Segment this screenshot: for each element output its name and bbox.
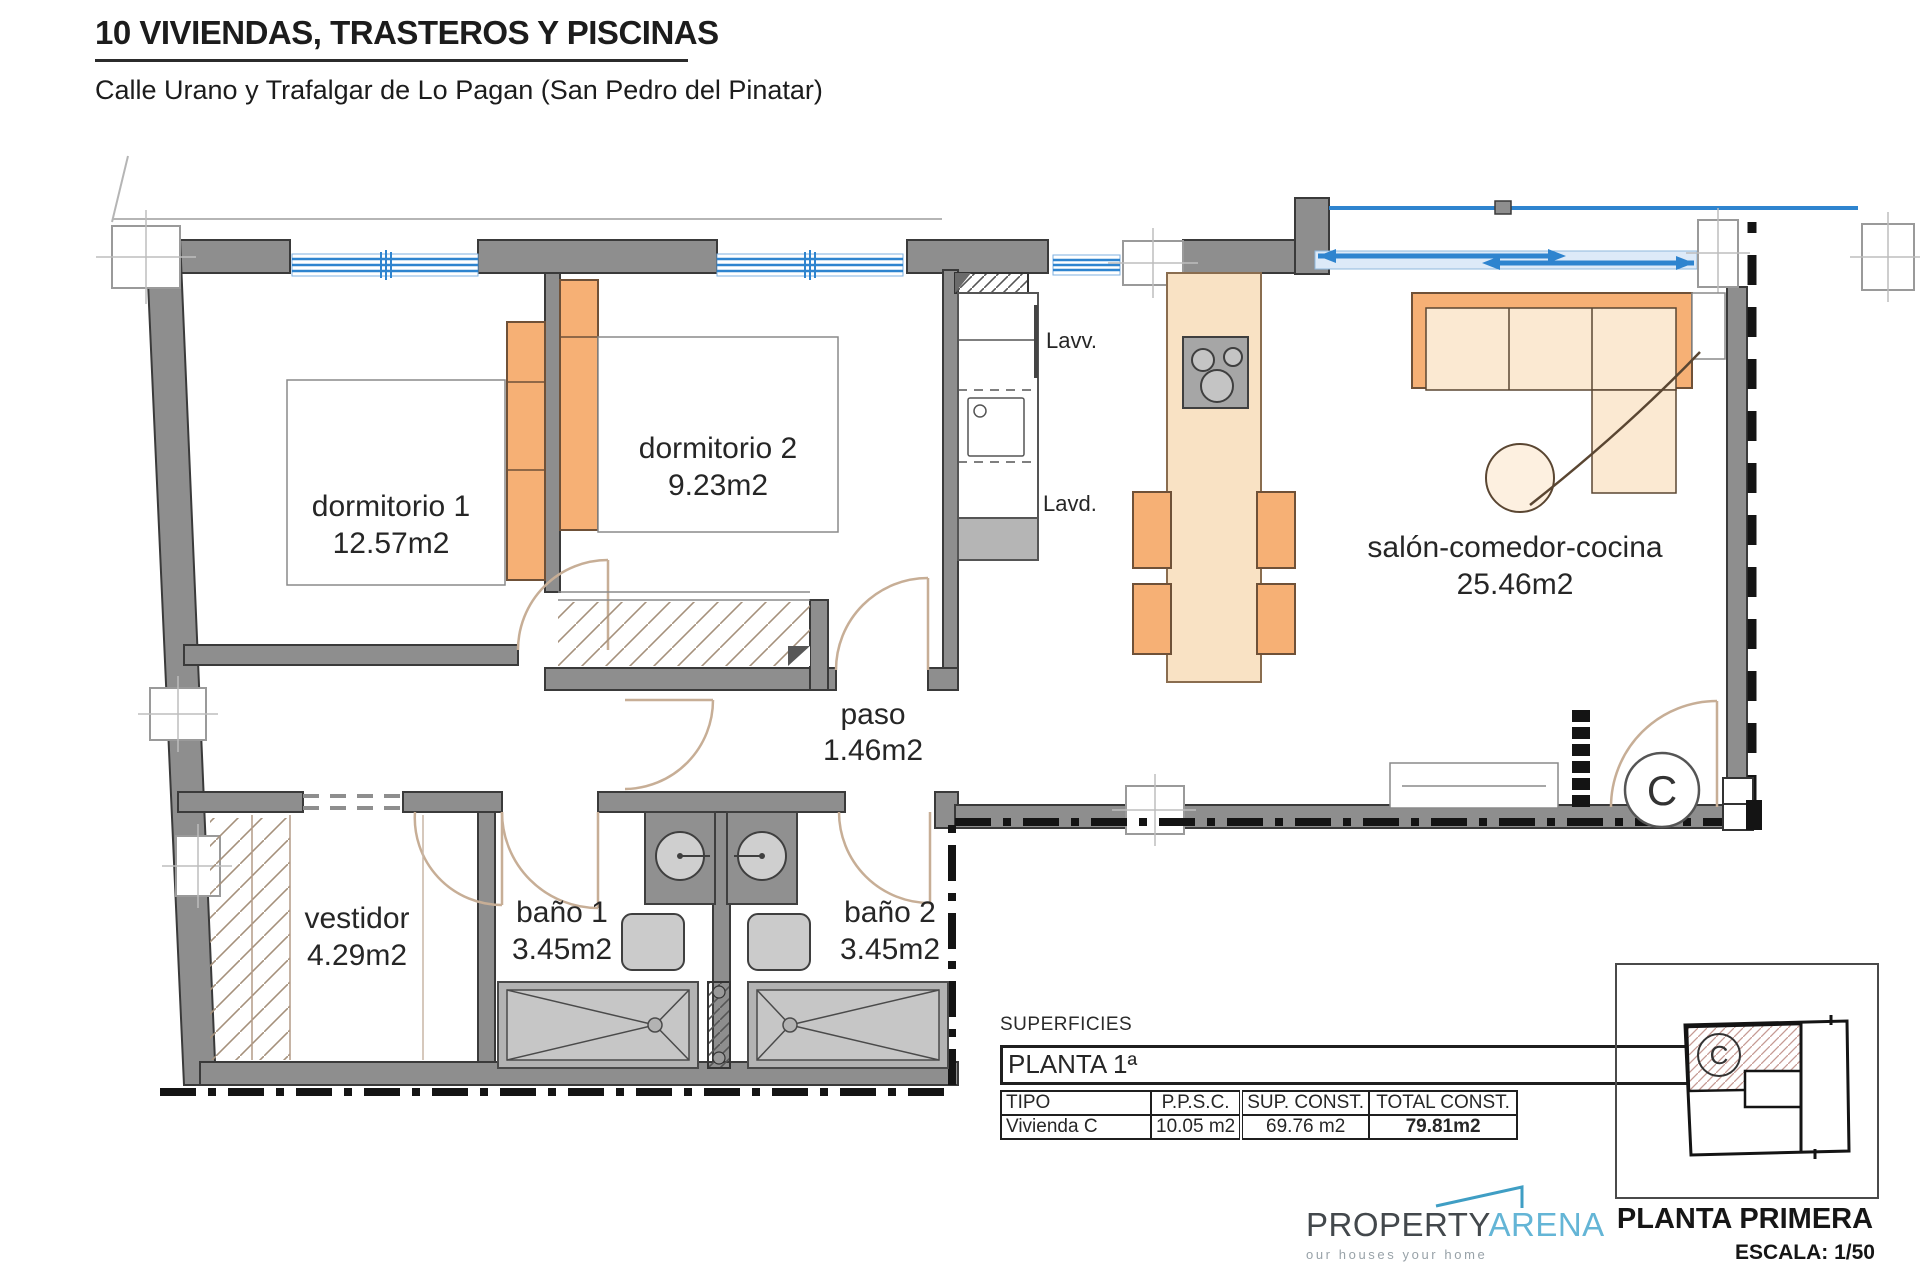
surfaces-block: SUPERFICIES PLANTA 1ª TIPO P.P.S.C. SUP.… [1000, 1014, 1700, 1140]
label-dormitorio2-name: dormitorio 2 [639, 432, 797, 465]
col-tipo: TIPO [1001, 1091, 1151, 1115]
logo-tagline: our houses your home [1306, 1247, 1586, 1262]
floor-lamp-icon [1486, 444, 1554, 512]
label-salon-area: 25.46m2 [1457, 568, 1574, 601]
cell-ppsc: 10.05 m2 [1151, 1115, 1241, 1139]
logo-wordmark: PROPERTYARENA [1306, 1206, 1586, 1244]
screen-dashes [1572, 710, 1590, 807]
wardrobe-dormitorio1 [507, 322, 545, 580]
facade-outline [112, 156, 942, 222]
terrace-glazing [1315, 201, 1858, 270]
table-header-row: TIPO P.P.S.C. SUP. CONST. TOTAL CONST. [1001, 1091, 1517, 1115]
key-plan-inset: C [1615, 963, 1879, 1199]
label-dormitorio2-area: 9.23m2 [668, 469, 768, 502]
label-vestidor-name: vestidor [304, 902, 409, 935]
label-salon-name: salón-comedor-cocina [1367, 531, 1662, 564]
logo-arena: ARENA [1489, 1206, 1605, 1243]
col-sup-const: SUP. CONST. [1241, 1091, 1369, 1115]
plan-scale: ESCALA: 1/50 [1603, 1241, 1875, 1265]
surfaces-table: TIPO P.P.S.C. SUP. CONST. TOTAL CONST. V… [1000, 1090, 1518, 1140]
label-paso-area: 1.46m2 [823, 734, 923, 767]
label-vestidor-area: 4.29m2 [307, 939, 407, 972]
floor-row: PLANTA 1ª [1000, 1045, 1699, 1085]
col-total-const: TOTAL CONST. [1369, 1091, 1517, 1115]
key-plan-drawing: C [1617, 965, 1873, 1193]
cell-total-const: 79.81m2 [1369, 1115, 1517, 1139]
label-paso-name: paso [840, 698, 905, 731]
label-lavd: Lavd. [1043, 491, 1097, 516]
col-ppsc: P.P.S.C. [1151, 1091, 1241, 1115]
vestidor-closet [210, 815, 423, 1060]
shaft-between-showers [708, 982, 730, 1068]
label-lavv: Lavv. [1046, 328, 1097, 353]
surfaces-caption: SUPERFICIES [1000, 1014, 1700, 1036]
logo-roof-icon [1434, 1182, 1534, 1210]
shower-bano2 [748, 982, 948, 1068]
unit-marker: C [1625, 753, 1699, 827]
window-kitchen-icon [1053, 255, 1120, 275]
plan-name: PLANTA PRIMERA [1603, 1203, 1887, 1236]
brand-logo: PROPERTYARENA our houses your home [1306, 1180, 1586, 1262]
side-table [1692, 293, 1725, 359]
wardrobe-dormitorio2 [560, 280, 598, 530]
utility-column [955, 273, 1038, 560]
closet-dormitorio2 [558, 592, 810, 666]
table-row: Vivienda C 10.05 m2 69.76 m2 79.81m2 [1001, 1115, 1517, 1139]
logo-property: PROPERTY [1306, 1206, 1489, 1243]
label-bano1-area: 3.45m2 [512, 933, 612, 966]
cell-tipo: Vivienda C [1001, 1115, 1151, 1139]
kitchen-island [1133, 273, 1295, 682]
label-bano1-name: baño 1 [516, 896, 608, 929]
floor-plan-page: 10 VIVIENDAS, TRASTEROS Y PISCINAS Calle… [0, 0, 1920, 1280]
window-dormitorio1-icon [292, 250, 478, 280]
toilet-bano1 [622, 914, 684, 970]
label-bano2-name: baño 2 [844, 896, 936, 929]
shower-bano1 [498, 982, 698, 1068]
stove-icon [1183, 337, 1248, 408]
cell-sup-const: 69.76 m2 [1241, 1115, 1369, 1139]
label-dormitorio1-area: 12.57m2 [333, 527, 450, 560]
toilet-bano2 [748, 914, 810, 970]
unit-letter: C [1647, 767, 1677, 814]
sliding-opening [303, 796, 403, 808]
window-dormitorio2-icon [717, 250, 903, 280]
label-bano2-area: 3.45m2 [840, 933, 940, 966]
inset-unit-letter: C [1710, 1040, 1729, 1070]
label-dormitorio1-name: dormitorio 1 [312, 490, 470, 523]
